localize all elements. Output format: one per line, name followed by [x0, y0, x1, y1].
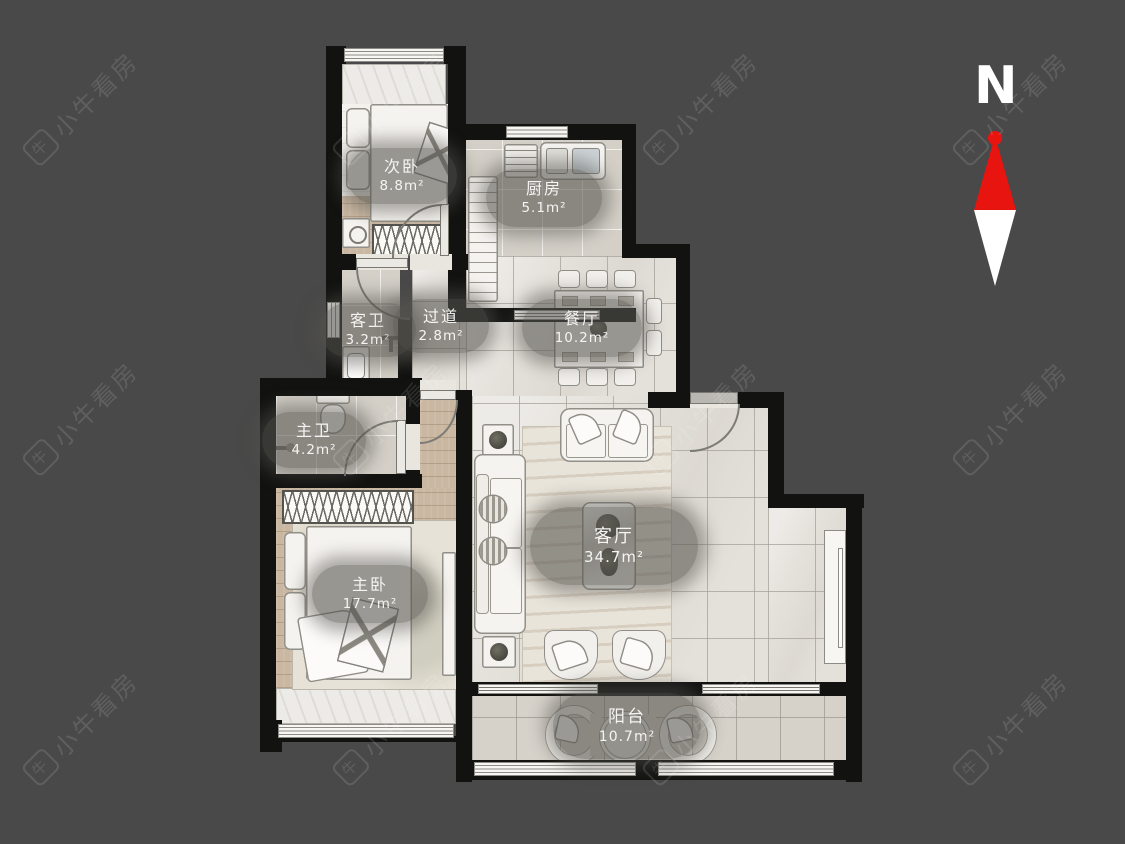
- wall: [326, 254, 356, 270]
- window-balcony-left: [474, 762, 636, 776]
- dining-chair: [586, 270, 608, 288]
- wall: [456, 390, 472, 690]
- dining-chair: [586, 368, 608, 386]
- watermark: 牛小牛看房: [638, 43, 765, 170]
- room-area: 10.2m²: [555, 330, 610, 348]
- watermark-text: 小牛看房: [664, 43, 765, 144]
- watermark-text: 小牛看房: [974, 353, 1075, 454]
- entry-door: [690, 392, 738, 404]
- bay-window-sill-master: [276, 688, 456, 724]
- niu-logo-icon: 牛: [20, 126, 61, 167]
- wardrobe-master: [282, 490, 414, 524]
- compass: N: [960, 60, 1040, 300]
- room-area: 8.8m²: [379, 178, 424, 196]
- room-name: 主卧: [352, 575, 388, 596]
- room-area: 5.1m²: [521, 200, 566, 218]
- niu-logo-icon: 牛: [950, 436, 991, 477]
- round-pillow: [480, 496, 506, 522]
- watermark: 牛小牛看房: [948, 353, 1075, 480]
- watermark: 牛小牛看房: [948, 663, 1075, 790]
- dining-chair: [646, 298, 662, 324]
- watermark-text: 小牛看房: [44, 663, 145, 764]
- wall: [452, 254, 468, 270]
- dining-chair: [614, 270, 636, 288]
- watermark: 牛小牛看房: [18, 663, 145, 790]
- tv-stand: [442, 552, 456, 676]
- niu-logo-icon: 牛: [20, 436, 61, 477]
- dining-chair: [646, 330, 662, 356]
- ac-unit-dial: [349, 226, 367, 244]
- wall: [846, 494, 862, 782]
- door-guest-bath: [356, 258, 408, 268]
- watermark-text: 小牛看房: [974, 663, 1075, 764]
- room-name: 阳台: [608, 706, 646, 728]
- door-master-corridor: [420, 390, 456, 400]
- room-label-living: 客厅 34.7m²: [530, 507, 698, 585]
- room-label-hallway: 过道 2.8m²: [393, 299, 489, 353]
- room-label-secondary-bedroom: 次卧 8.8m²: [347, 148, 457, 204]
- window-living-right-leaf: [838, 548, 843, 648]
- room-name: 客卫: [350, 311, 386, 332]
- north-arrow-icon: [972, 126, 1018, 292]
- window-balcony-right: [658, 762, 834, 776]
- room-area: 4.2m²: [291, 442, 336, 460]
- compass-north-label: N: [974, 60, 1018, 112]
- niu-logo-icon: 牛: [950, 746, 991, 787]
- room-area: 17.7m²: [343, 596, 398, 614]
- wall: [260, 474, 422, 488]
- pillow: [346, 108, 370, 148]
- plant: [490, 643, 508, 661]
- room-name: 过道: [423, 307, 459, 328]
- window-master-bay: [278, 724, 454, 738]
- room-label-balcony: 阳台 10.7m²: [553, 693, 701, 759]
- watermark: 牛小牛看房: [18, 43, 145, 170]
- wall: [622, 124, 636, 256]
- room-name: 厨房: [526, 179, 562, 200]
- watermark-text: 小牛看房: [44, 43, 145, 144]
- room-area: 10.7m²: [599, 728, 655, 746]
- niu-logo-icon: 牛: [640, 126, 681, 167]
- sliding-door-balcony-right: [702, 684, 820, 694]
- pillow: [284, 532, 306, 590]
- watermark: 牛小牛看房: [18, 353, 145, 480]
- room-name: 餐厅: [564, 309, 600, 330]
- room-name: 主卫: [296, 421, 332, 442]
- room-area: 2.8m²: [418, 328, 463, 346]
- room-name: 客厅: [594, 525, 634, 548]
- room-name: 次卧: [384, 157, 420, 178]
- room-label-kitchen: 厨房 5.1m²: [486, 169, 602, 227]
- wall: [326, 46, 346, 64]
- niu-logo-icon: 牛: [330, 746, 371, 787]
- room-area: 3.2m²: [345, 332, 390, 350]
- bay-window-sill-secondary: [342, 64, 446, 106]
- dining-chair: [558, 368, 580, 386]
- dining-chair: [558, 270, 580, 288]
- room-label-master-bedroom: 主卧 17.7m²: [312, 565, 428, 623]
- dining-chair: [614, 368, 636, 386]
- window-kitchen: [506, 126, 568, 138]
- room-label-dining: 餐厅 10.2m²: [522, 299, 642, 357]
- watermark-text: 小牛看房: [44, 353, 145, 454]
- floor-plan: 次卧 8.8m² 厨房 5.1m² 客卫 3.2m² 过道 2.8m² 餐厅 1…: [0, 0, 1125, 844]
- wall: [676, 256, 690, 398]
- round-pillow: [480, 538, 506, 564]
- niu-logo-icon: 牛: [20, 746, 61, 787]
- window-secondary-bay: [344, 48, 444, 62]
- plant: [489, 431, 507, 449]
- room-label-master-bath: 主卫 4.2m²: [262, 412, 366, 468]
- doorway: [406, 424, 420, 470]
- wall: [648, 392, 690, 408]
- room-area: 34.7m²: [584, 548, 644, 568]
- wall: [768, 392, 784, 508]
